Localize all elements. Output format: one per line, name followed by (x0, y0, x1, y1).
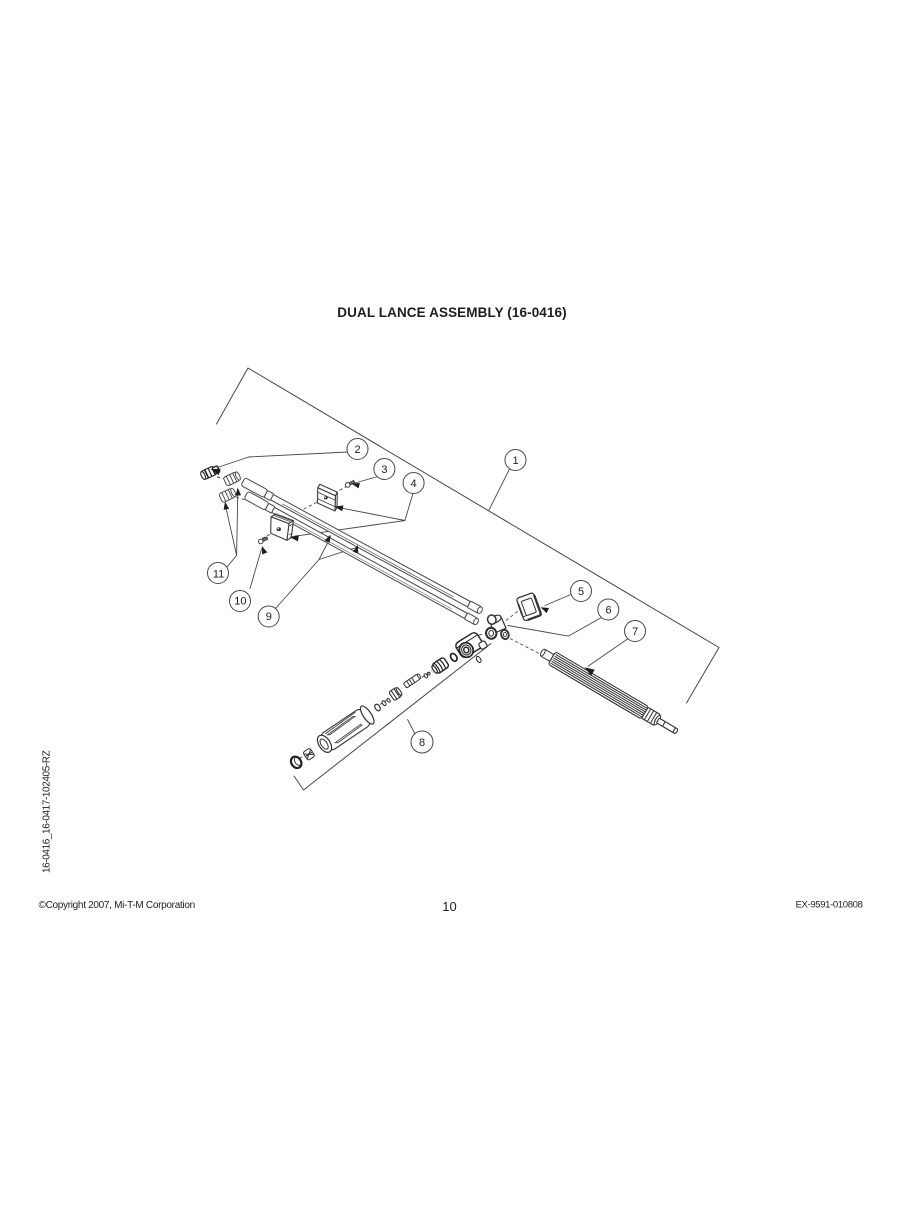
svg-text:1: 1 (512, 455, 518, 467)
svg-text:9: 9 (266, 611, 272, 623)
svg-text:4: 4 (411, 478, 417, 490)
svg-text:6: 6 (606, 605, 612, 617)
svg-text:16-0416_16-0417-102405-RZ: 16-0416_16-0417-102405-RZ (42, 750, 53, 873)
svg-text:3: 3 (381, 464, 387, 476)
svg-text:©Copyright 2007, Mi-T-M Corpor: ©Copyright 2007, Mi-T-M Corporation (39, 900, 195, 911)
svg-text:10: 10 (234, 596, 246, 608)
svg-text:11: 11 (213, 568, 224, 580)
svg-text:2: 2 (354, 444, 360, 456)
svg-text:7: 7 (632, 626, 638, 638)
svg-text:5: 5 (578, 586, 584, 598)
svg-text:8: 8 (419, 737, 425, 749)
svg-text:EX-9591-010808: EX-9591-010808 (796, 900, 863, 911)
svg-text:DUAL LANCE ASSEMBLY (16-0416): DUAL LANCE ASSEMBLY (16-0416) (337, 305, 566, 320)
svg-text:10: 10 (442, 899, 456, 914)
